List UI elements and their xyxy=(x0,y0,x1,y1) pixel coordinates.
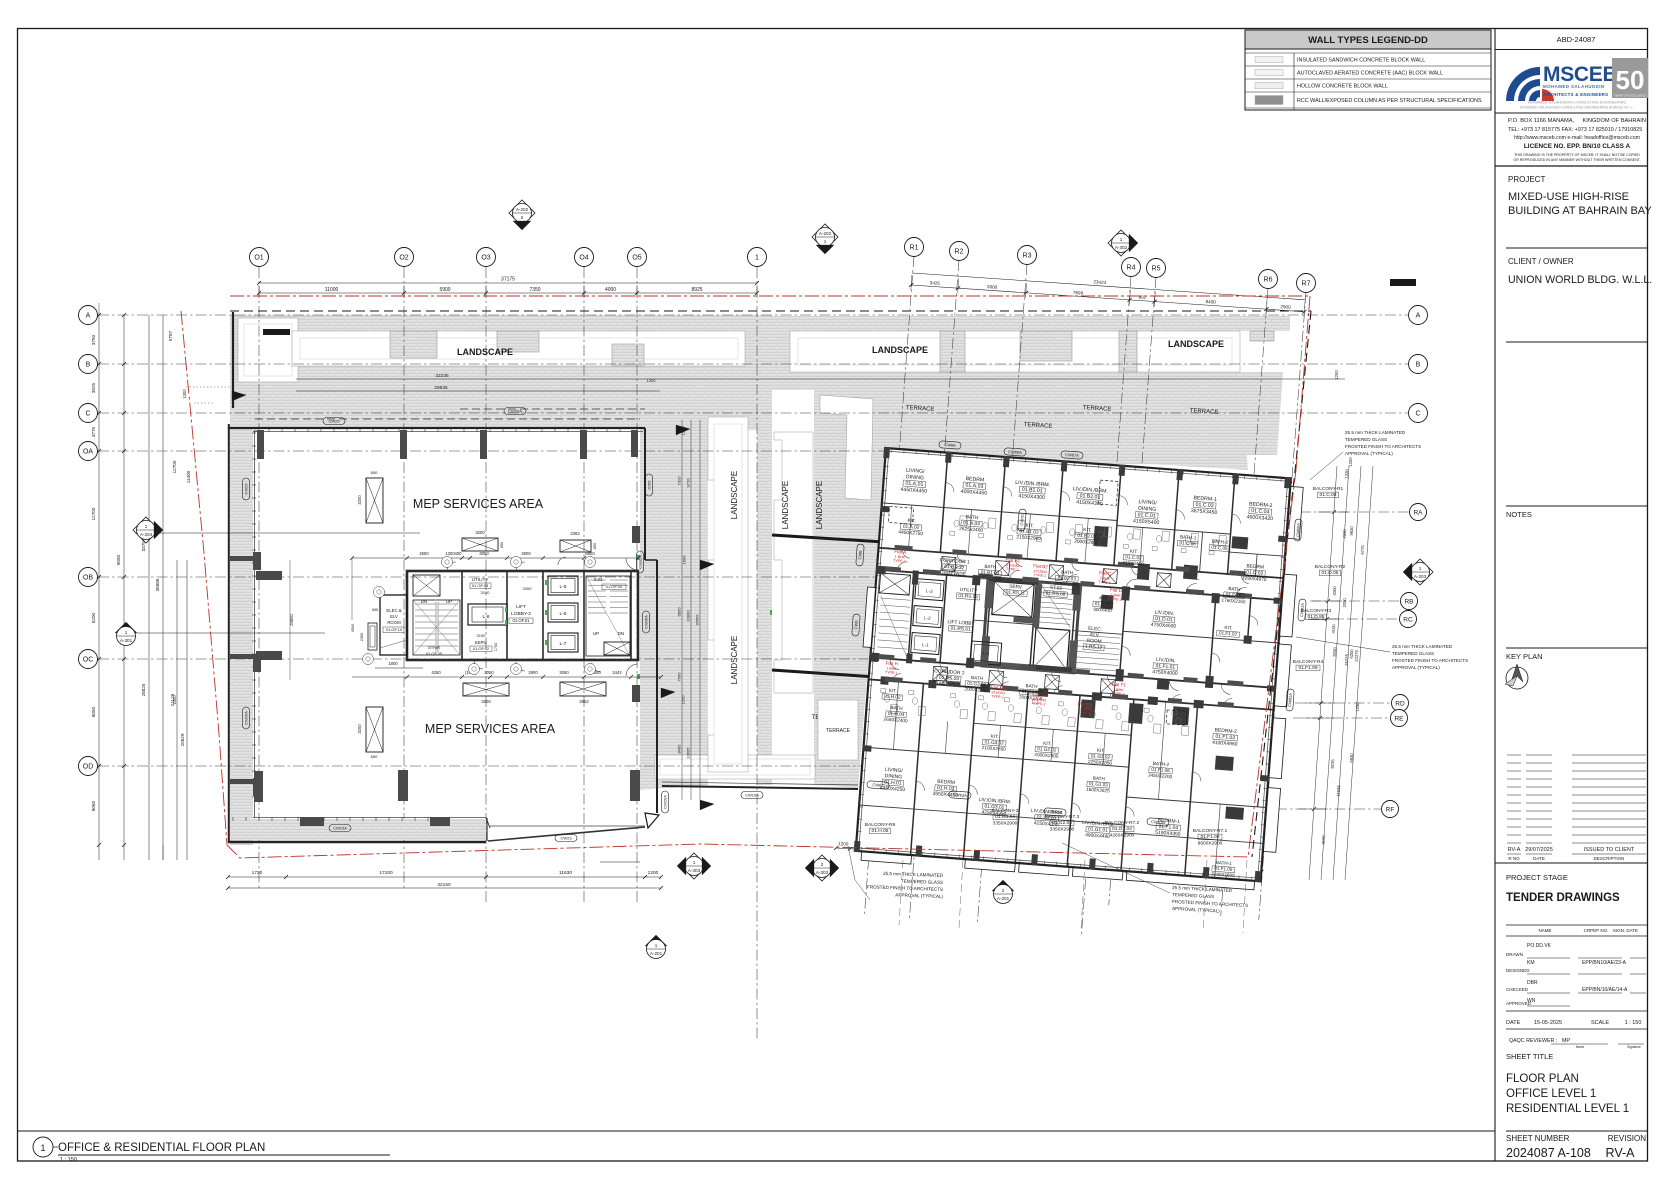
svg-text:9050: 9050 xyxy=(116,554,121,565)
svg-text:3250: 3250 xyxy=(1342,597,1348,607)
svg-text:http://www.msceb.com e-mail: http://www.msceb.com e-mail: headoffice@… xyxy=(1514,135,1640,141)
svg-text:Signature: Signature xyxy=(1627,1045,1641,1049)
svg-text:CRPEP NO.: CRPEP NO. xyxy=(1584,928,1609,933)
svg-text:PROJECT STAGE: PROJECT STAGE xyxy=(1506,873,1568,882)
svg-text:MEP SERVICES AREA: MEP SERVICES AREA xyxy=(413,497,544,511)
svg-text:TENDER DRAWINGS: TENDER DRAWINGS xyxy=(1506,892,1620,904)
svg-text:CW66A: CW66A xyxy=(1008,449,1022,455)
svg-text:L-4: L-4 xyxy=(982,651,989,657)
svg-text:CHECKED: CHECKED xyxy=(1506,987,1529,992)
svg-text:A: A xyxy=(86,313,91,320)
svg-text:802: 802 xyxy=(1138,294,1146,300)
svg-text:3350X2900: 3350X2900 xyxy=(993,820,1018,826)
svg-text:BALCONY-R9: BALCONY-R9 xyxy=(865,822,896,828)
svg-text:8060: 8060 xyxy=(91,800,96,811)
svg-text:S.03: S.03 xyxy=(594,577,603,582)
svg-text:R2: R2 xyxy=(955,249,964,256)
svg-text:KIT.: KIT. xyxy=(1025,523,1034,530)
svg-text:5900: 5900 xyxy=(439,287,450,293)
svg-text:1200: 1200 xyxy=(838,841,849,847)
svg-text:01.F1.09: 01.F1.09 xyxy=(1298,665,1317,671)
svg-text:RA: RA xyxy=(1413,509,1423,516)
svg-text:30565: 30565 xyxy=(695,614,700,626)
svg-text:BATH: BATH xyxy=(1025,683,1037,689)
svg-text:EPP/BN/10/AE/14-A: EPP/BN/10/AE/14-A xyxy=(1582,987,1628,993)
svg-text:KM: KM xyxy=(1527,960,1535,966)
svg-text:SERV.: SERV. xyxy=(1009,584,1023,590)
svg-text:32236: 32236 xyxy=(435,373,449,379)
svg-text:A-301: A-301 xyxy=(120,638,133,643)
svg-text:A-203: A-203 xyxy=(1414,574,1427,579)
svg-text:RE: RE xyxy=(1394,715,1404,722)
svg-text:O2: O2 xyxy=(399,255,408,262)
svg-text:CW25A: CW25A xyxy=(508,409,522,414)
svg-text:6830: 6830 xyxy=(1349,752,1355,762)
svg-text:TEMPERED GLASS: TEMPERED GLASS xyxy=(1345,437,1387,442)
svg-text:25.5 mm THICK LAMINATED: 25.5 mm THICK LAMINATED xyxy=(1345,430,1406,435)
svg-text:8400: 8400 xyxy=(1205,299,1216,305)
svg-text:RV-A: RV-A xyxy=(1508,847,1521,853)
svg-text:SHEET TITLE: SHEET TITLE xyxy=(1506,1052,1553,1061)
svg-text:4500: 4500 xyxy=(351,624,355,632)
svg-text:APPROVED: APPROVED xyxy=(1506,1001,1532,1006)
svg-text:KIT.: KIT. xyxy=(1083,527,1092,534)
svg-text:3200: 3200 xyxy=(475,530,485,535)
svg-text:UTILITY: UTILITY xyxy=(472,577,489,582)
svg-text:28825: 28825 xyxy=(141,683,146,696)
svg-text:R NO: R NO xyxy=(1508,856,1520,861)
svg-text:400: 400 xyxy=(455,551,463,556)
svg-text:CW26A: CW26A xyxy=(663,795,668,809)
svg-text:L-1: L-1 xyxy=(922,642,929,648)
svg-text:1: 1 xyxy=(655,943,658,948)
svg-text:6800: 6800 xyxy=(585,551,595,556)
svg-text:ELV: ELV xyxy=(390,614,398,619)
svg-text:L-6: L-6 xyxy=(560,611,567,617)
svg-text:P.O. BOX 1166 MANAMA,: P.O. BOX 1166 MANAMA, xyxy=(1508,118,1575,124)
svg-text:01.G3.04: 01.G3.04 xyxy=(995,814,1015,820)
svg-text:ARCHITECTS & ENGINEERS: ARCHITECTS & ENGINEERS xyxy=(1543,92,1608,97)
svg-text:CW60A: CW60A xyxy=(1295,523,1301,537)
svg-text:01.D.85: 01.D.85 xyxy=(1308,614,1325,620)
svg-text:3300: 3300 xyxy=(1332,585,1338,595)
svg-text:KIT.: KIT. xyxy=(1043,741,1051,747)
svg-text:6850: 6850 xyxy=(677,607,682,617)
svg-text:1700: 1700 xyxy=(494,643,498,651)
svg-text:CW26A: CW26A xyxy=(244,711,249,725)
svg-text:KIT.: KIT. xyxy=(907,518,916,525)
svg-text:DATE: DATE xyxy=(1533,856,1545,861)
svg-text:KIT.: KIT. xyxy=(990,734,998,740)
svg-text:8050: 8050 xyxy=(91,706,96,717)
svg-text:1200: 1200 xyxy=(648,870,659,876)
svg-text:REVISION: REVISION xyxy=(1608,1134,1646,1143)
svg-text:3060: 3060 xyxy=(479,551,489,556)
svg-text:3050: 3050 xyxy=(559,670,569,675)
svg-text:1: 1 xyxy=(1120,237,1123,242)
svg-text:LANDSCAPE: LANDSCAPE xyxy=(781,481,790,529)
svg-text:17100: 17100 xyxy=(379,870,393,876)
svg-text:L-7: L-7 xyxy=(560,641,567,647)
svg-text:1300: 1300 xyxy=(172,695,177,705)
svg-text:2: 2 xyxy=(521,215,524,220)
svg-text:50: 50 xyxy=(1616,65,1645,95)
svg-text:ELEC.: ELEC. xyxy=(1088,626,1102,633)
svg-text:7600: 7600 xyxy=(677,672,682,682)
svg-text:RB: RB xyxy=(1404,598,1413,605)
svg-text:KIT.: KIT. xyxy=(889,688,897,694)
svg-text:01.OF.05: 01.OF.05 xyxy=(426,651,443,656)
svg-text:11630: 11630 xyxy=(559,870,572,876)
svg-text:KIT.: KIT. xyxy=(1099,595,1107,601)
svg-text:7350: 7350 xyxy=(529,287,540,293)
svg-text:A-303: A-303 xyxy=(816,870,829,875)
svg-text:9830: 9830 xyxy=(1349,525,1355,535)
svg-text:UNION WORLD BLDG. W.L.L.: UNION WORLD BLDG. W.L.L. xyxy=(1508,274,1652,286)
svg-text:3775: 3775 xyxy=(91,426,96,437)
svg-text:CW23A: CW23A xyxy=(333,826,347,831)
svg-text:MOHAMED SALAHUDDIN CONSULTING: MOHAMED SALAHUDDIN CONSULTING ENGINEERIN… xyxy=(1528,101,1627,105)
svg-text:THIS DRAWING IS THE PROPERTY O: THIS DRAWING IS THE PROPERTY OF MSCEB. I… xyxy=(1514,153,1640,157)
svg-text:BATH: BATH xyxy=(1093,775,1105,781)
svg-text:CW63: CW63 xyxy=(872,782,884,788)
svg-text:11935: 11935 xyxy=(1336,784,1342,796)
svg-text:3190: 3190 xyxy=(481,590,491,595)
svg-text:KINGDOM OF BAHRAIN: KINGDOM OF BAHRAIN xyxy=(1582,118,1646,124)
svg-text:01.D.05: 01.D.05 xyxy=(1322,570,1339,576)
svg-text:01.G1.04: 01.G1.04 xyxy=(1112,826,1132,832)
svg-text:10665: 10665 xyxy=(686,747,691,759)
svg-text:38686: 38686 xyxy=(155,578,160,591)
svg-text:2350: 2350 xyxy=(360,633,364,641)
svg-text:1: 1 xyxy=(693,860,696,865)
svg-text:LANDSCAPE: LANDSCAPE xyxy=(730,471,739,519)
svg-text:1200: 1200 xyxy=(1348,457,1353,467)
svg-text:01.OF.01: 01.OF.01 xyxy=(513,618,531,623)
svg-text:A-202: A-202 xyxy=(516,207,529,212)
svg-text:CW23: CW23 xyxy=(560,836,572,841)
svg-text:CW67A: CW67A xyxy=(1065,452,1079,458)
svg-text:CW36A: CW36A xyxy=(644,615,649,629)
svg-text:RESIDENTIAL LEVEL 1: RESIDENTIAL LEVEL 1 xyxy=(1506,1103,1629,1115)
svg-text:2442: 2442 xyxy=(612,670,622,675)
svg-text:1: 1 xyxy=(1419,566,1422,571)
svg-text:1200: 1200 xyxy=(1334,370,1339,380)
svg-text:A-302: A-302 xyxy=(1115,245,1128,250)
svg-text:C: C xyxy=(1415,411,1420,418)
svg-text:1800: 1800 xyxy=(388,661,398,666)
svg-text:01.C.05: 01.C.05 xyxy=(1320,492,1337,498)
svg-text:01.OF.10: 01.OF.10 xyxy=(386,627,403,632)
svg-text:R3: R3 xyxy=(1023,253,1032,260)
svg-text:C: C xyxy=(85,411,90,418)
svg-text:BATH: BATH xyxy=(966,514,979,521)
svg-text:R1: R1 xyxy=(910,245,919,252)
svg-text:ABD-24087: ABD-24087 xyxy=(1557,35,1596,44)
svg-text:O4: O4 xyxy=(579,255,588,262)
svg-text:OFFICE LEVEL 1: OFFICE LEVEL 1 xyxy=(1506,1088,1596,1100)
svg-text:01.OF.03: 01.OF.03 xyxy=(472,583,489,588)
svg-text:LOBBY-2: LOBBY-2 xyxy=(511,611,531,617)
svg-text:A: A xyxy=(1416,313,1421,320)
svg-text:15-05-2025: 15-05-2025 xyxy=(1534,1020,1562,1026)
svg-text:3200: 3200 xyxy=(357,724,362,734)
svg-text:7320: 7320 xyxy=(677,476,682,486)
svg-text:2: 2 xyxy=(821,862,824,867)
svg-text:01.G2.04: 01.G2.04 xyxy=(1052,820,1072,826)
svg-text:7320: 7320 xyxy=(1342,528,1348,538)
svg-text:RF: RF xyxy=(1386,806,1395,813)
svg-text:MSCEB: MSCEB xyxy=(1543,63,1617,86)
svg-text:1: 1 xyxy=(145,524,148,529)
svg-text:KIT.: KIT. xyxy=(1224,625,1232,631)
svg-text:25.5 mm THICK LAMINATED: 25.5 mm THICK LAMINATED xyxy=(1392,644,1453,649)
svg-text:8925: 8925 xyxy=(691,287,702,293)
svg-text:AUTOCLAVED AERATED CONCRETE (A: AUTOCLAVED AERATED CONCRETE (AAC) BLOCK … xyxy=(1297,71,1443,77)
svg-text:CW6: CW6 xyxy=(647,480,652,490)
svg-text:FROSTED FINISH TO ARCHITECTS: FROSTED FINISH TO ARCHITECTS xyxy=(1345,444,1421,449)
svg-text:650: 650 xyxy=(593,543,597,549)
svg-text:32150: 32150 xyxy=(437,882,451,888)
svg-text:1: 1 xyxy=(40,1143,45,1153)
svg-text:B: B xyxy=(86,362,91,369)
svg-text:3750: 3750 xyxy=(91,334,96,345)
svg-text:O1: O1 xyxy=(254,255,263,262)
svg-text:1600: 1600 xyxy=(682,555,687,565)
svg-text:1: 1 xyxy=(125,630,128,635)
svg-text:5787: 5787 xyxy=(168,330,173,341)
svg-text:OD: OD xyxy=(83,764,94,771)
svg-text:BATH: BATH xyxy=(890,705,903,711)
svg-text:CW26: CW26 xyxy=(244,483,249,495)
svg-text:MP: MP xyxy=(1562,1038,1570,1044)
svg-text:A-201: A-201 xyxy=(650,951,663,956)
svg-text:1 : 150: 1 : 150 xyxy=(1625,1020,1642,1026)
svg-text:CW91A: CW91A xyxy=(1299,603,1305,617)
svg-text:23424: 23424 xyxy=(1093,279,1107,285)
svg-text:ISSUED TO CLIENT: ISSUED TO CLIENT xyxy=(1584,847,1635,853)
svg-text:MOHAMED SALAHUDDIN: MOHAMED SALAHUDDIN xyxy=(1543,84,1605,89)
svg-text:TERRACE: TERRACE xyxy=(826,728,851,734)
svg-text:DATE: DATE xyxy=(1506,1020,1521,1026)
svg-text:8495: 8495 xyxy=(677,744,682,754)
svg-text:2900: 2900 xyxy=(1280,304,1291,310)
svg-text:4260X2900: 4260X2900 xyxy=(1110,832,1135,838)
svg-text:3925: 3925 xyxy=(91,382,96,393)
svg-text:01.H.05: 01.H.05 xyxy=(872,828,889,834)
svg-text:29836: 29836 xyxy=(434,385,448,391)
svg-text:01.OF.04: 01.OF.04 xyxy=(606,584,623,589)
svg-text:2: 2 xyxy=(1002,888,1005,893)
svg-text:11000: 11000 xyxy=(325,287,339,293)
svg-text:1200: 1200 xyxy=(647,378,657,383)
svg-text:2900: 2900 xyxy=(528,670,538,675)
svg-text:650: 650 xyxy=(371,470,378,475)
svg-text:L-3: L-3 xyxy=(926,588,933,594)
svg-text:SCALE: SCALE xyxy=(1591,1020,1609,1026)
svg-text:DBR: DBR xyxy=(1527,980,1538,986)
svg-text:OFFICE & RESIDENTIAL FLOOR PLA: OFFICE & RESIDENTIAL FLOOR PLAN xyxy=(58,1142,265,1154)
svg-text:CW62A: CW62A xyxy=(1048,809,1062,815)
svg-text:3190: 3190 xyxy=(477,633,487,638)
svg-text:SERV.: SERV. xyxy=(474,640,487,645)
svg-text:37175: 37175 xyxy=(501,277,515,283)
svg-text:01.F1.08: 01.F1.08 xyxy=(1200,834,1219,840)
svg-text:3200: 3200 xyxy=(357,495,362,505)
svg-text:650: 650 xyxy=(500,542,504,548)
svg-text:A-204: A-204 xyxy=(140,532,153,537)
svg-text:ROOM: ROOM xyxy=(1086,638,1101,645)
svg-text:3350X2900: 3350X2900 xyxy=(1050,826,1075,832)
svg-text:UP: UP xyxy=(446,599,452,604)
svg-text:Name: Name xyxy=(1576,1045,1585,1049)
svg-text:CLIENT / OWNER: CLIENT / OWNER xyxy=(1508,257,1574,266)
svg-text:APPROVAL (TYPICAL): APPROVAL (TYPICAL) xyxy=(1392,665,1440,670)
svg-text:4100: 4100 xyxy=(1331,623,1337,633)
svg-text:LICENCE NO. EPP. BN/10 CLASS: LICENCE NO. EPP. BN/10 CLASS A xyxy=(1524,143,1631,150)
svg-text:KEY PLAN: KEY PLAN xyxy=(1506,652,1543,661)
svg-text:1300: 1300 xyxy=(182,389,187,399)
svg-text:11400: 11400 xyxy=(186,470,191,483)
svg-text:APPROVAL (TYPICAL): APPROVAL (TYPICAL) xyxy=(1345,451,1393,456)
svg-text:2900: 2900 xyxy=(521,551,531,556)
svg-text:CW63A: CW63A xyxy=(953,792,967,798)
svg-text:TEMPERED GLASS: TEMPERED GLASS xyxy=(1392,651,1434,656)
svg-text:LANDSCAPE: LANDSCAPE xyxy=(457,347,513,357)
svg-text:O5: O5 xyxy=(632,255,641,262)
svg-text:CW61B: CW61B xyxy=(1151,819,1165,825)
svg-text:BALCONY-R7.1: BALCONY-R7.1 xyxy=(1193,828,1228,834)
svg-text:RCC WALL/EXPOSED COLUMN AS PER: RCC WALL/EXPOSED COLUMN AS PER STRUCTURA… xyxy=(1297,98,1482,104)
svg-text:6775: 6775 xyxy=(1360,544,1366,554)
svg-text:L-5: L-5 xyxy=(560,584,567,590)
svg-text:1250: 1250 xyxy=(1355,701,1361,711)
svg-text:A-303: A-303 xyxy=(688,868,701,873)
svg-text:RC: RC xyxy=(1403,616,1413,623)
svg-text:BALCONY-R2: BALCONY-R2 xyxy=(1315,564,1346,570)
svg-text:BATH: BATH xyxy=(984,564,996,570)
svg-text:7699: 7699 xyxy=(1073,290,1084,296)
svg-text:22275: 22275 xyxy=(1354,649,1360,662)
svg-text:3300: 3300 xyxy=(523,586,533,591)
svg-text:CW70: CW70 xyxy=(1019,514,1025,526)
svg-text:ELEC.&: ELEC.& xyxy=(386,608,401,613)
svg-text:NOTES: NOTES xyxy=(1506,510,1532,519)
svg-text:1320: 1320 xyxy=(1344,468,1350,478)
svg-text:RV-A: RV-A xyxy=(1606,1146,1636,1160)
svg-text:CW66: CW66 xyxy=(944,442,956,448)
svg-text:MIXED-USE HIGH-RISE: MIXED-USE HIGH-RISE xyxy=(1508,191,1629,203)
svg-text:EPP/BN10/AE/23-A: EPP/BN10/AE/23-A xyxy=(1582,960,1627,966)
svg-text:MOHAMED SALAHUDDIN CONSULTING: MOHAMED SALAHUDDIN CONSULTING ENGINEERIN… xyxy=(1520,106,1634,110)
svg-text:3200: 3200 xyxy=(481,699,491,704)
svg-text:8235: 8235 xyxy=(1330,758,1336,768)
svg-text:O3: O3 xyxy=(481,255,490,262)
svg-text:3425: 3425 xyxy=(930,280,941,286)
svg-text:DESCRIPTION: DESCRIPTION xyxy=(1594,856,1625,861)
svg-text:6200: 6200 xyxy=(91,612,96,623)
svg-text:BATH: BATH xyxy=(971,675,983,681)
svg-text:5000: 5000 xyxy=(987,284,998,290)
svg-text:3190: 3190 xyxy=(1321,834,1327,844)
svg-text:OB: OB xyxy=(83,575,93,582)
svg-text:R7: R7 xyxy=(1302,281,1311,288)
svg-text:DESIGNED: DESIGNED xyxy=(1506,968,1530,973)
svg-text:B: B xyxy=(1416,362,1421,369)
svg-text:4250: 4250 xyxy=(431,670,441,675)
svg-text:KIT.: KIT. xyxy=(1130,549,1138,555)
svg-text:8200: 8200 xyxy=(1332,646,1338,656)
svg-text:655: 655 xyxy=(372,608,378,612)
svg-text:RD: RD xyxy=(1395,700,1405,707)
svg-text:LANDSCAPE: LANDSCAPE xyxy=(872,345,928,355)
svg-text:2024087 A-108: 2024087 A-108 xyxy=(1506,1146,1591,1160)
svg-text:R4: R4 xyxy=(1127,265,1136,272)
svg-text:CW91A: CW91A xyxy=(1287,693,1293,707)
svg-text:R6: R6 xyxy=(1264,277,1273,284)
svg-text:2362: 2362 xyxy=(570,531,580,536)
svg-text:FROSTED FINISH TO ARCHITECTS: FROSTED FINISH TO ARCHITECTS xyxy=(1392,658,1468,663)
svg-text:2852: 2852 xyxy=(579,699,589,704)
svg-text:CW25: CW25 xyxy=(328,419,340,424)
svg-text:TEL: +973 17 815775 FAX: +973: TEL: +973 17 815775 FAX: +973 17 825010 … xyxy=(1508,127,1642,133)
svg-text:1 : 150: 1 : 150 xyxy=(60,1157,77,1163)
svg-text:2550: 2550 xyxy=(419,551,429,556)
svg-text:OA: OA xyxy=(83,449,93,456)
svg-text:BUILDING AT BAHRAIN BAY: BUILDING AT BAHRAIN BAY xyxy=(1508,205,1652,217)
svg-text:KIT.: KIT. xyxy=(1097,748,1105,754)
svg-text:LIFT: LIFT xyxy=(516,604,526,610)
svg-text:UP: UP xyxy=(593,631,599,636)
svg-text:DRAWN: DRAWN xyxy=(1506,952,1523,957)
svg-text:WALL TYPES LEGEND-DD: WALL TYPES LEGEND-DD xyxy=(1308,35,1428,46)
svg-text:MEP SERVICES AREA: MEP SERVICES AREA xyxy=(425,722,556,736)
svg-text:ROOM: ROOM xyxy=(387,620,401,625)
svg-text:QAQC REVIEWER :: QAQC REVIEWER : xyxy=(1509,1038,1557,1044)
svg-text:PROJECT: PROJECT xyxy=(1508,175,1545,184)
svg-text:R5: R5 xyxy=(1152,266,1161,273)
svg-text:12700: 12700 xyxy=(172,460,177,473)
svg-text:LANDSCAPE: LANDSCAPE xyxy=(1168,339,1224,349)
svg-text:12700: 12700 xyxy=(91,507,96,520)
svg-text:DN: DN xyxy=(618,631,625,636)
svg-text:NAME: NAME xyxy=(1538,928,1551,933)
svg-text:INSULATED SANDWICH CONCRETE BL: INSULATED SANDWICH CONCRETE BLOCK WALL xyxy=(1297,58,1425,64)
svg-text:650: 650 xyxy=(371,754,378,759)
svg-text:LANDSCAPE: LANDSCAPE xyxy=(815,481,824,529)
svg-text:OR REPRODUCED IN ANY MANNER WI: OR REPRODUCED IN ANY MANNER WITHOUT THEI… xyxy=(1513,158,1640,162)
svg-text:BALCONY-R1: BALCONY-R1 xyxy=(1313,486,1344,492)
svg-text:CW9: CW9 xyxy=(853,620,859,630)
svg-text:BATH: BATH xyxy=(1228,586,1241,592)
svg-text:BALCONY-R7.2: BALCONY-R7.2 xyxy=(1105,820,1140,826)
svg-text:SHEET NUMBER: SHEET NUMBER xyxy=(1506,1134,1570,1143)
svg-text:L-8: L-8 xyxy=(483,614,490,620)
svg-text:1: 1 xyxy=(755,255,759,262)
svg-text:8600X2900: 8600X2900 xyxy=(1198,840,1223,846)
svg-text:1200: 1200 xyxy=(681,695,686,705)
svg-text:HOLLOW CONCRETE BLOCK WALL: HOLLOW CONCRETE BLOCK WALL xyxy=(1297,84,1388,90)
svg-text:29/07/2025: 29/07/2025 xyxy=(1525,847,1553,853)
svg-text:BALCONY-2: BALCONY-2 xyxy=(992,808,1019,814)
svg-text:BATH: BATH xyxy=(1061,569,1073,575)
svg-text:28800: 28800 xyxy=(289,614,294,626)
svg-text:PO.DD.VK: PO.DD.VK xyxy=(1527,943,1552,949)
svg-text:1720: 1720 xyxy=(252,870,263,876)
svg-text:OC: OC xyxy=(83,657,94,664)
svg-text:A-202: A-202 xyxy=(819,231,832,236)
svg-text:BALCONY-R4: BALCONY-R4 xyxy=(1293,659,1324,665)
